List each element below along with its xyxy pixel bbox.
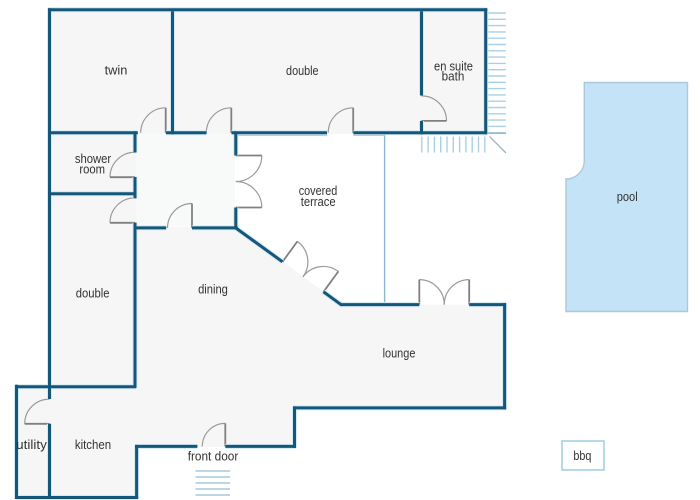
svg-text:dining: dining [198,282,228,297]
svg-text:lounge: lounge [383,345,416,360]
svg-text:pool: pool [617,189,638,204]
svg-text:front door: front door [188,448,239,463]
svg-text:bbq: bbq [573,448,591,463]
svg-text:bath: bath [442,68,465,83]
svg-text:double: double [76,286,110,301]
svg-text:twin: twin [105,63,128,78]
svg-text:kitchen: kitchen [75,437,111,452]
svg-text:room: room [79,162,105,177]
svg-text:terrace: terrace [301,194,336,209]
svg-text:utility: utility [16,437,47,452]
svg-text:double: double [286,63,319,78]
